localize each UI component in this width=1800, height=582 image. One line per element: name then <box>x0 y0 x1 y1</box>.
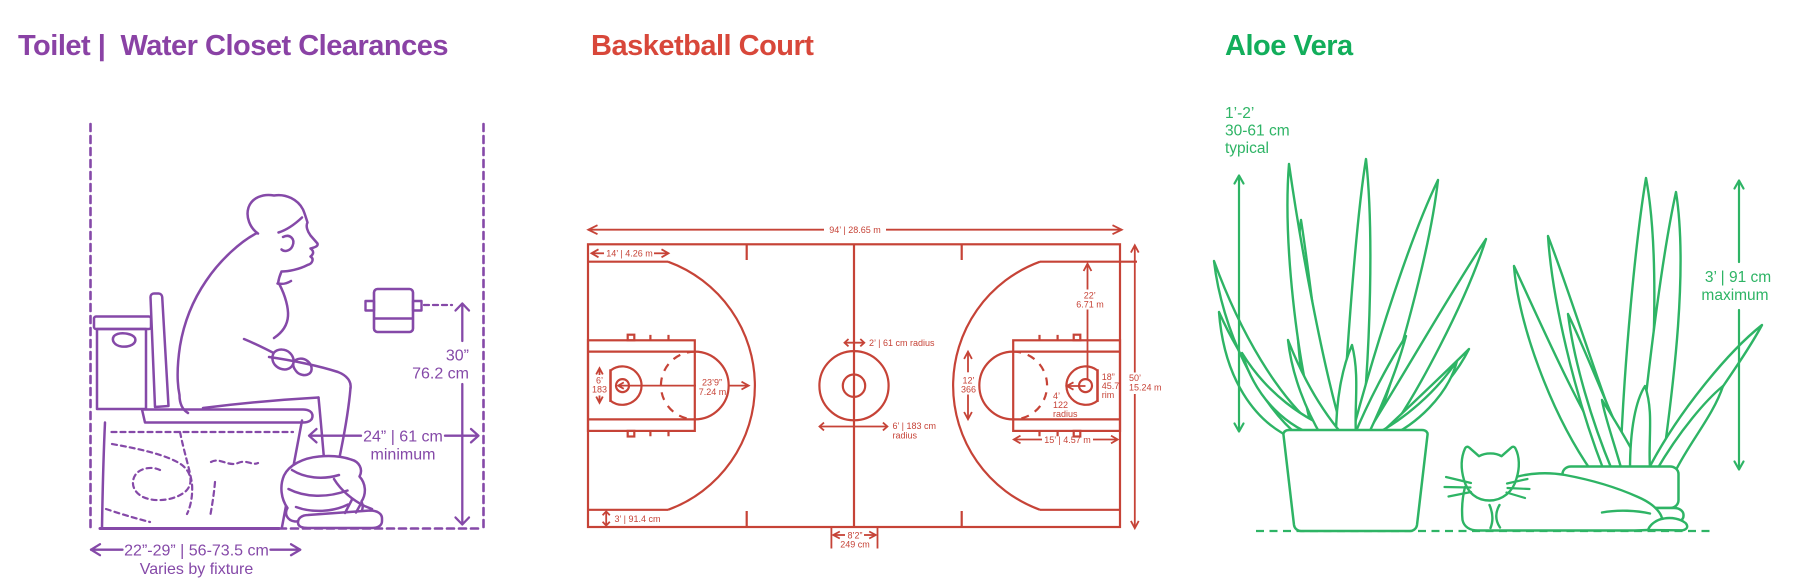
svg-text:24” | 61 cm: 24” | 61 cm <box>363 429 443 446</box>
svg-text:1’-2’: 1’-2’ <box>1225 105 1254 122</box>
svg-text:radius: radius <box>1053 409 1078 419</box>
svg-text:rim: rim <box>1102 390 1115 400</box>
svg-text:366: 366 <box>961 385 976 395</box>
svg-text:3’ | 91.4 cm: 3’ | 91.4 cm <box>615 514 661 524</box>
svg-text:7.24 m: 7.24 m <box>699 387 727 397</box>
svg-text:94’ | 28.65 m: 94’ | 28.65 m <box>829 225 881 235</box>
svg-text:3’ | 91 cm: 3’ | 91 cm <box>1705 269 1771 286</box>
svg-text:radius: radius <box>893 431 918 441</box>
svg-text:183: 183 <box>592 385 607 395</box>
svg-text:2’ | 61 cm radius: 2’ | 61 cm radius <box>869 338 935 348</box>
svg-text:23’9”: 23’9” <box>702 377 722 387</box>
svg-text:30”: 30” <box>446 348 469 365</box>
svg-text:15’ | 4.57 m: 15’ | 4.57 m <box>1044 435 1091 445</box>
svg-text:249 cm: 249 cm <box>840 540 870 550</box>
svg-text:Basketball Court: Basketball Court <box>591 30 814 62</box>
svg-text:Aloe Vera: Aloe Vera <box>1225 30 1354 62</box>
svg-text:76.2 cm: 76.2 cm <box>412 366 469 383</box>
svg-text:typical: typical <box>1225 140 1269 157</box>
svg-text:22”-29” | 56-73.5 cm: 22”-29” | 56-73.5 cm <box>124 543 269 560</box>
svg-text:maximum: maximum <box>1701 287 1768 304</box>
svg-text:6.71 m: 6.71 m <box>1076 299 1104 309</box>
svg-text:Varies by fixture: Varies by fixture <box>140 561 254 578</box>
svg-text:30-61 cm: 30-61 cm <box>1225 123 1290 140</box>
svg-text:Toilet | Water Closet Clearan: Toilet | Water Closet Clearances <box>18 30 448 62</box>
svg-text:minimum: minimum <box>371 447 436 464</box>
svg-text:14’ | 4.26 m: 14’ | 4.26 m <box>606 249 653 259</box>
svg-text:15.24 m: 15.24 m <box>1129 382 1162 392</box>
